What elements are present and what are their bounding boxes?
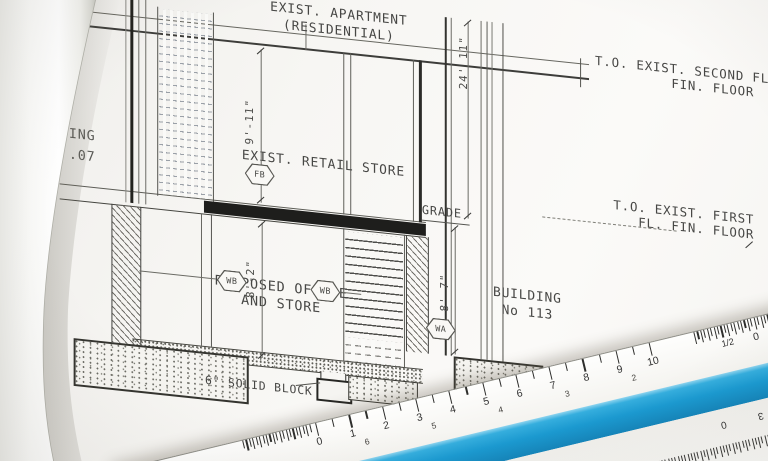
ruler-tick — [729, 444, 732, 451]
ruler-tick — [750, 318, 753, 326]
ruler-number: 3 — [749, 408, 768, 424]
ruler-tick — [737, 322, 740, 330]
ruler-tick — [348, 415, 352, 428]
ruler-number: 0 — [744, 328, 768, 345]
ruler-number: 0 — [307, 433, 331, 450]
tall-wall-line-3 — [481, 21, 482, 359]
ruler-tick — [276, 432, 279, 440]
ruler-tick — [748, 439, 751, 446]
ruler-number: 4 — [492, 403, 510, 416]
ruler-number: 10 — [641, 353, 665, 370]
ruler-number: 6 — [508, 385, 532, 402]
ruler-tick — [449, 391, 453, 404]
dim-line-office — [262, 223, 263, 358]
right-wall-hatched — [406, 235, 429, 354]
ruler-tick — [315, 423, 319, 436]
ruler-tick — [599, 355, 602, 363]
ruler-tick — [565, 363, 568, 371]
stair-right-bound-b — [404, 235, 405, 367]
stair-left-treads — [159, 9, 212, 200]
ruler-tick — [262, 436, 265, 444]
to-second-label: T.O. EXIST. SECOND FL. FIN. FLOOR — [595, 53, 754, 100]
ruler-tick — [757, 317, 760, 325]
ruler-tick — [743, 320, 746, 328]
ruler-tick — [256, 437, 259, 445]
blueprint-photo: EXIST. APARTMENT (RESIDENTIAL) EXIST. RE… — [0, 0, 768, 461]
ruler-number: 0 — [712, 416, 736, 432]
ruler-tick — [723, 325, 726, 333]
ruler-tick — [722, 445, 725, 452]
ruler-tick — [398, 403, 401, 411]
ruler-tick — [717, 326, 720, 334]
ruler-tick — [242, 440, 245, 448]
stair-left-bound-b — [213, 13, 214, 202]
ruler-tick — [649, 343, 653, 356]
retail-wall-line-2 — [350, 53, 351, 215]
ruler-tick — [482, 383, 486, 396]
retail-wall-line-4 — [419, 60, 421, 222]
ruler-tick — [249, 439, 252, 447]
ruler-tick — [710, 449, 713, 456]
ruler-number: 5 — [425, 419, 443, 432]
dim-line-grade — [455, 227, 456, 354]
solid-block — [316, 378, 352, 405]
ruler-number: 1/2 — [716, 335, 740, 350]
ruler-tick — [690, 453, 693, 460]
ruler-tick — [710, 328, 713, 336]
ruler-tick — [289, 429, 292, 437]
to-first-label: T.O. EXIST. FIRST FL. FIN. FLOOR — [595, 195, 754, 242]
dim-overall: 24' 11" — [457, 36, 470, 90]
level-tick-second — [580, 58, 581, 87]
ruler-number: 4 — [441, 401, 465, 418]
ruler-tick — [302, 426, 305, 434]
ruler-tick — [730, 323, 733, 331]
ruler-number: 2 — [625, 371, 643, 384]
ruler-tick — [716, 447, 719, 454]
ruler-number: 2 — [374, 417, 398, 434]
ruler-tick — [282, 431, 285, 439]
ruler-tick — [678, 456, 681, 461]
dim-office: 8'-2" — [244, 260, 257, 299]
ruler-tick — [761, 436, 764, 443]
ruler-tick — [309, 424, 312, 432]
ruler-tick — [499, 379, 502, 387]
tag-fb-text: FB — [246, 164, 273, 185]
ruler-tick — [684, 455, 687, 461]
ruler-tick — [532, 371, 535, 379]
building-label: BUILDING No 113 — [490, 283, 566, 325]
ruler-tick — [697, 452, 700, 459]
ruler-tick — [703, 450, 706, 457]
ruler-tick — [742, 441, 745, 448]
dim-retail: 9'-11" — [243, 98, 256, 145]
ruler-tick — [332, 419, 335, 427]
ruler-tick — [465, 387, 468, 395]
ruler-tick — [735, 442, 738, 449]
ruler-tick — [615, 351, 619, 364]
ruler-number: 8 — [574, 369, 598, 386]
ruler-tick — [703, 330, 706, 338]
ruler-tick — [632, 347, 635, 355]
ruler-number: 3 — [558, 387, 576, 400]
ruler-tick — [697, 331, 700, 339]
ruler-tick — [515, 375, 519, 388]
ruler-tick — [382, 407, 386, 420]
apartment-label: EXIST. APARTMENT (RESIDENTIAL) — [237, 0, 441, 50]
ruler-tick — [549, 367, 553, 380]
retail-wall-line-3 — [413, 59, 414, 221]
ruler-tick — [415, 399, 419, 412]
ruler-tick — [365, 411, 368, 419]
dim-grade: 8' 7" — [438, 273, 451, 312]
ruler-tick — [296, 428, 299, 436]
ruler-number: 6 — [358, 435, 376, 448]
ruler-tick — [582, 359, 586, 372]
retail-wall-line-1 — [343, 52, 344, 214]
page-curl — [0, 0, 150, 461]
ruler-tick — [269, 434, 272, 442]
ruler-tick — [755, 438, 758, 445]
tall-wall-line-4 — [487, 21, 488, 359]
ruler-tick — [432, 395, 435, 403]
ruler-tick — [763, 315, 766, 323]
